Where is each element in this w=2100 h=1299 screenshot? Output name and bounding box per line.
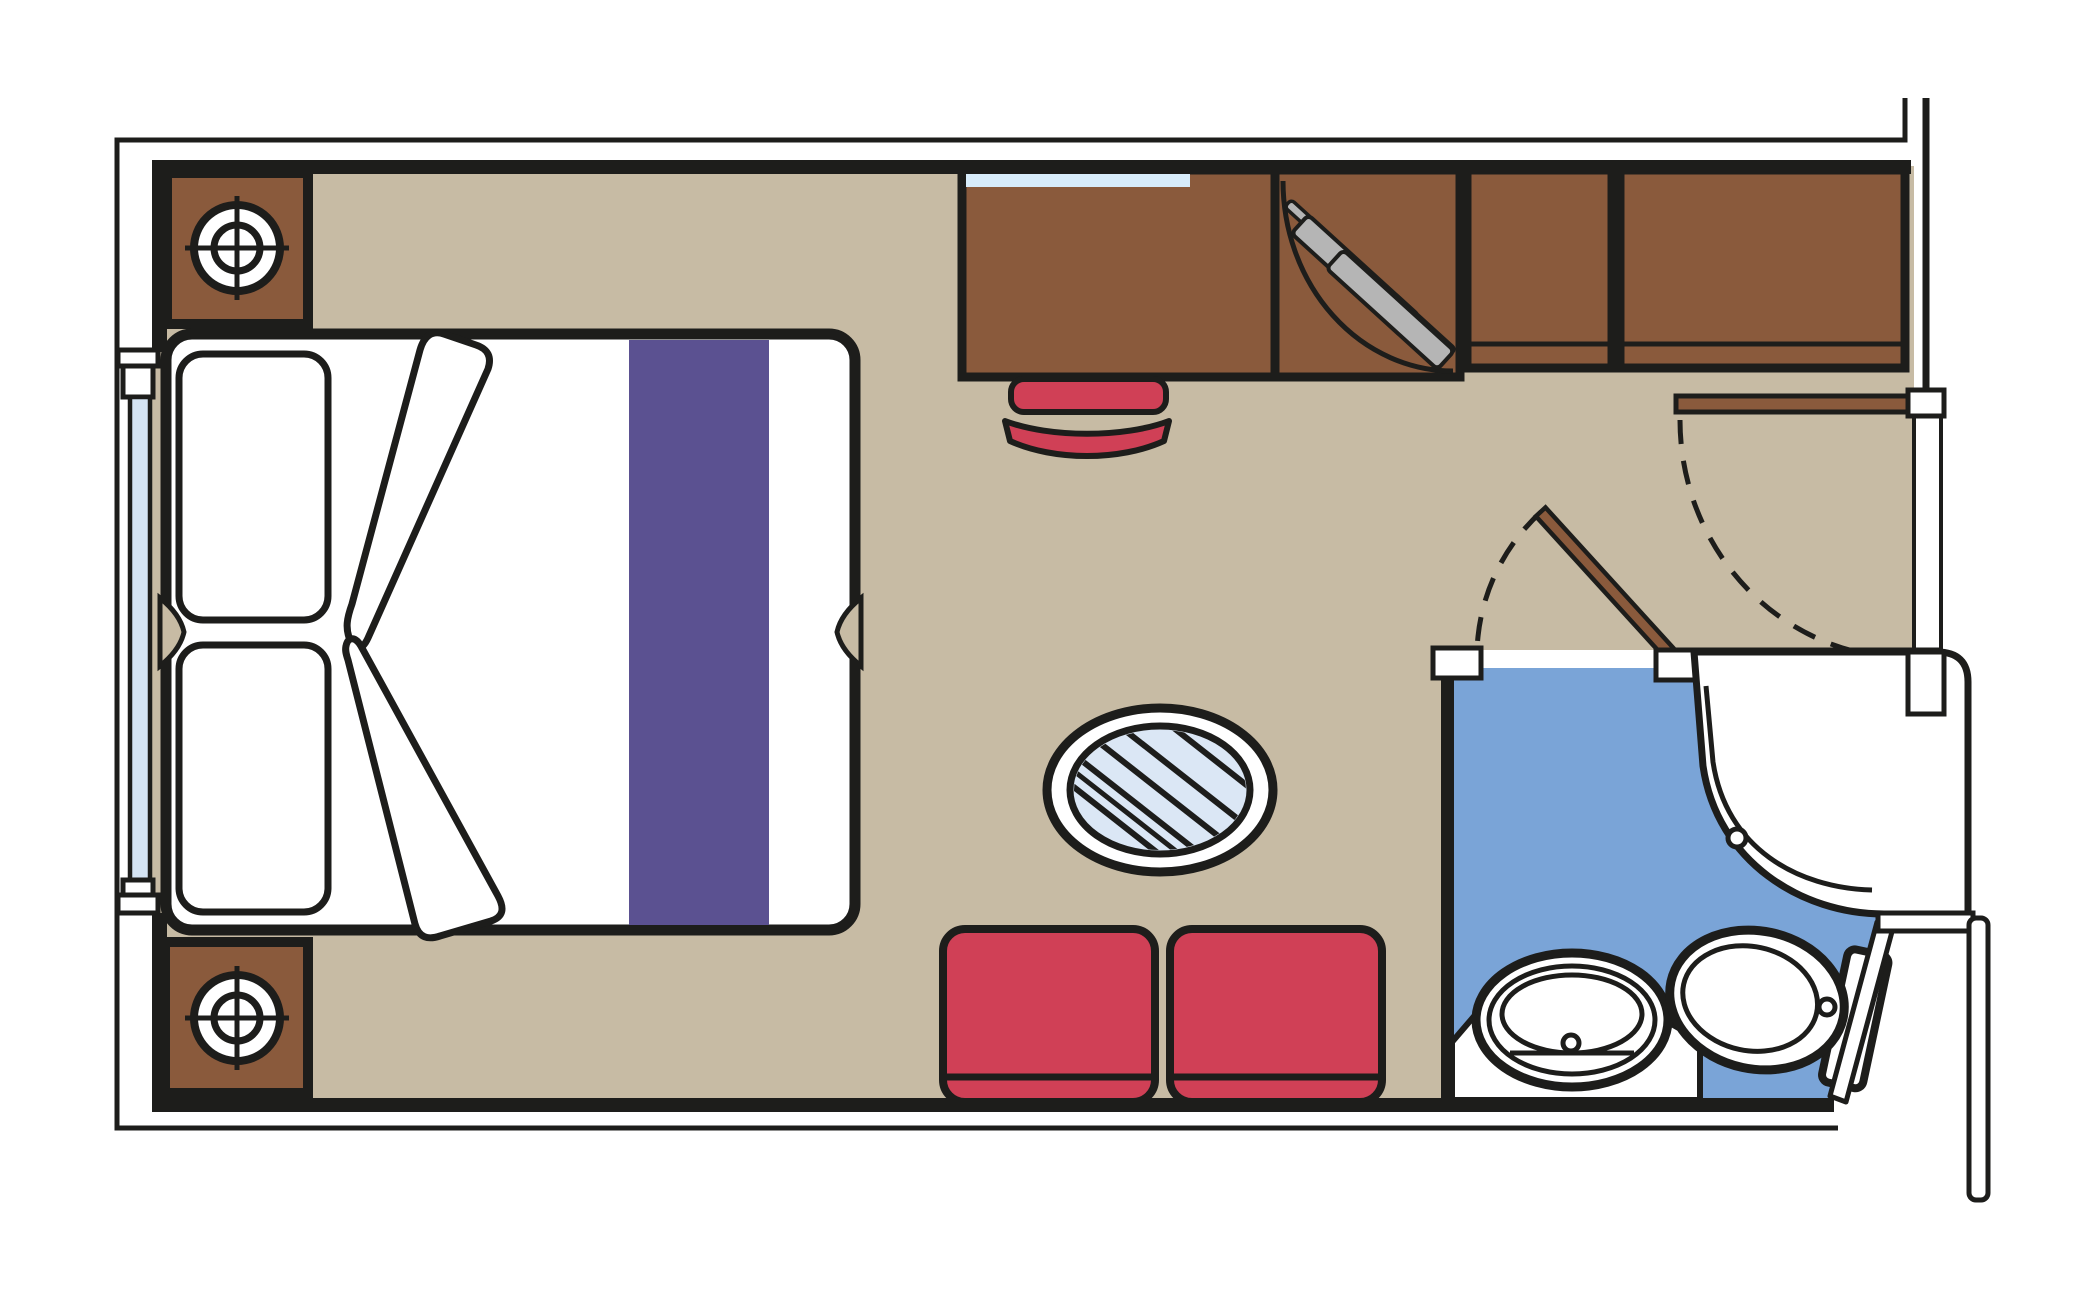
- wardrobe: Wardrobe with hangers: [1275, 170, 1460, 377]
- window: Panoramic window: [118, 350, 158, 913]
- desk: Desk / dresser: [962, 170, 1275, 377]
- washbasin: Washbasin: [1476, 953, 1668, 1087]
- closet-unit-a: Closet unit A: [1467, 170, 1612, 368]
- bathroom: Bathroom floor Shower enclosure Vanity c…: [1433, 648, 1968, 1112]
- floor-plan: Cabin floor Desk / dresser Wardrobe with…: [0, 0, 2100, 1299]
- pillow-top: [179, 354, 328, 620]
- flush-button-icon: [1819, 999, 1835, 1015]
- shower-handle-icon: [1728, 829, 1746, 847]
- nightstand-top: Nightstand with lamp (top): [167, 173, 308, 324]
- desk-shelf: [966, 174, 1190, 187]
- sofa-seat-right: Sofa seat (right): [1170, 929, 1382, 1102]
- pillow-bottom: [179, 645, 328, 912]
- nightstand-bottom: Nightstand with lamp (bottom): [165, 942, 308, 1093]
- window-glass: [130, 397, 150, 880]
- bed: Double bed: [160, 333, 861, 938]
- faucet-icon: [1563, 1035, 1579, 1051]
- bed-runner: [629, 340, 769, 925]
- closet-unit-b: Closet unit B: [1620, 170, 1905, 368]
- sofa-seat-left: Sofa seat (left): [943, 929, 1155, 1102]
